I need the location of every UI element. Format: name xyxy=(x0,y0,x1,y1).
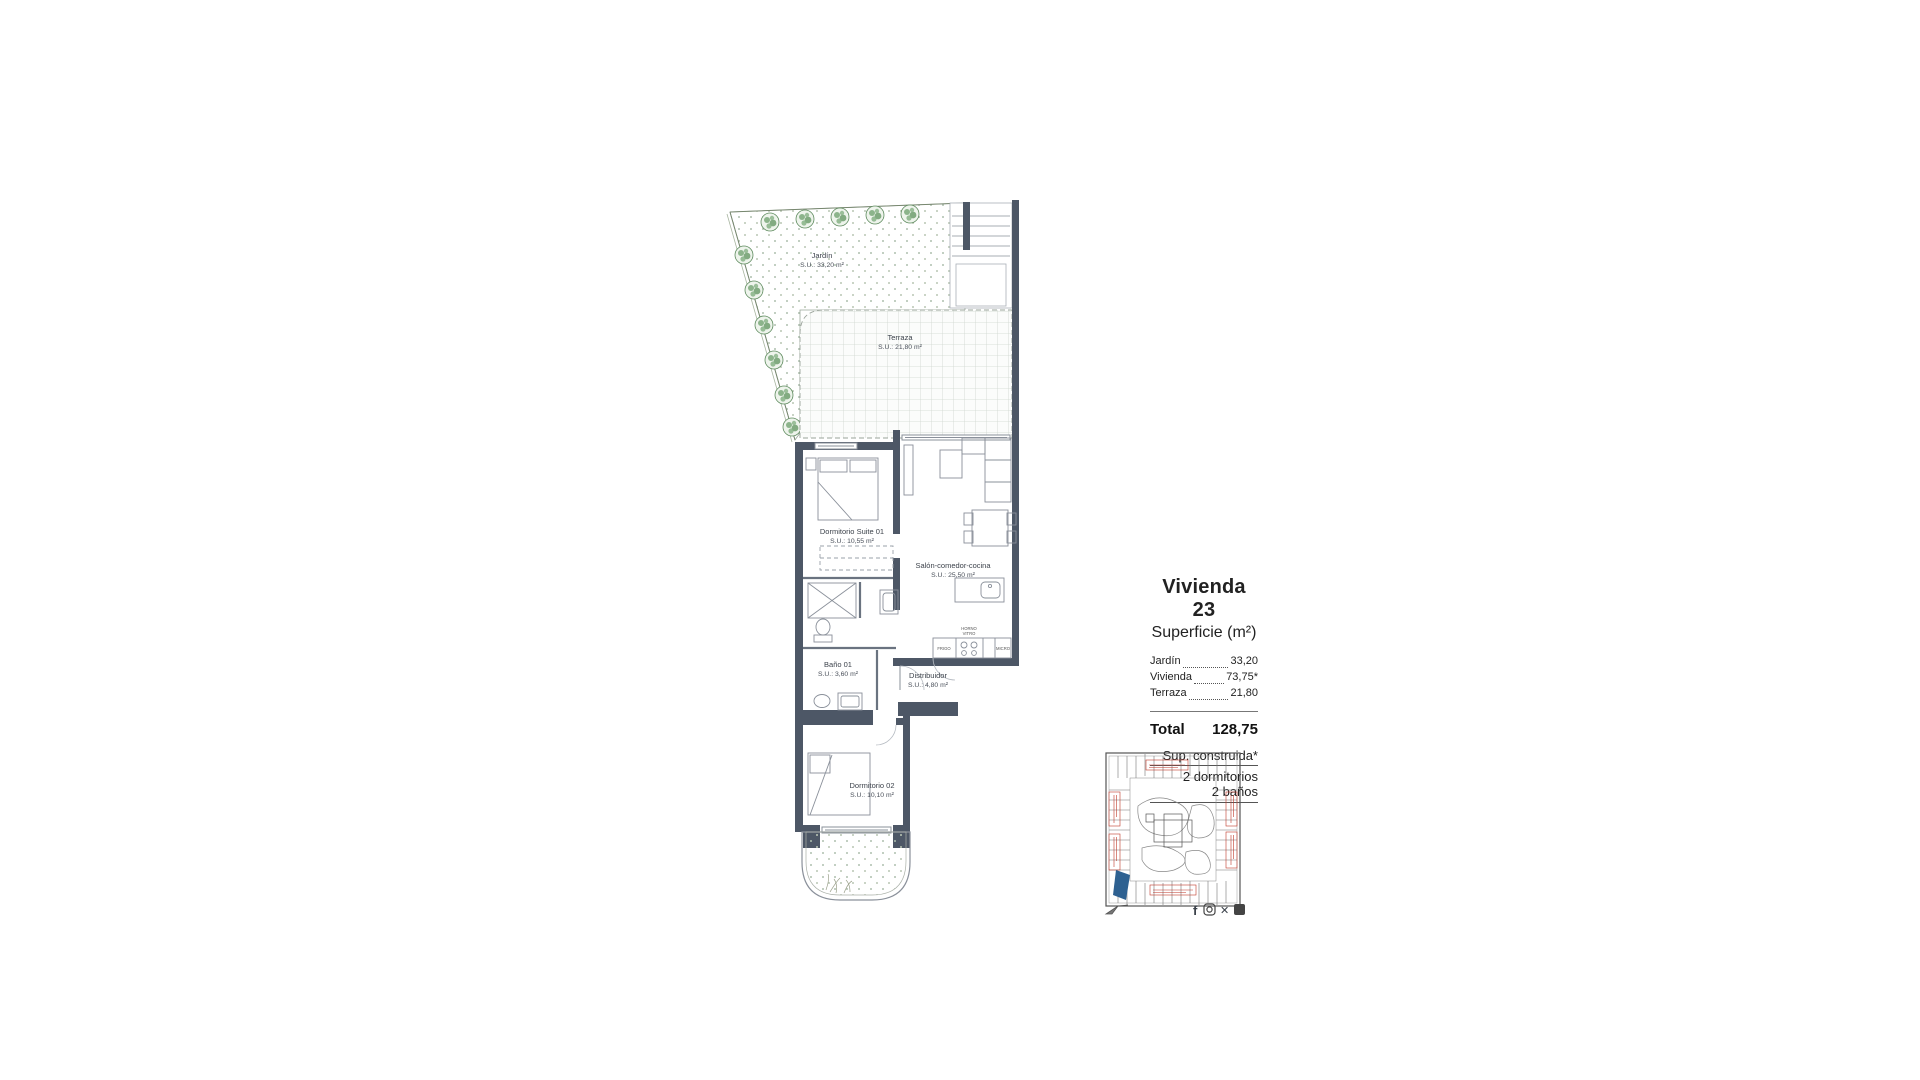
total-value: 128,75 xyxy=(1212,721,1258,738)
terrace-area-label: S.U.: 21,80 m² xyxy=(878,344,923,351)
unit-title: Vivienda 23 xyxy=(1150,576,1258,622)
surface-list: Jardín 33,20 Vivienda 73,75* Terraza 21,… xyxy=(1150,654,1258,702)
app-icon[interactable] xyxy=(1234,904,1245,915)
room-salon: FRIGO HORNO VITRO MICRO Salón-comedor-co… xyxy=(904,438,1016,658)
garden-label: Jardín xyxy=(812,251,833,260)
surface-row-vivienda: Vivienda 73,75* xyxy=(1150,670,1258,686)
entry-walkway xyxy=(950,203,1012,308)
room-suite: Dormitorio Suite 01 S.U.: 10,55 m² xyxy=(806,458,893,570)
tree-icon xyxy=(775,386,793,404)
surface-label: Jardín xyxy=(1150,654,1181,670)
surface-value: 33,20 xyxy=(1230,654,1258,670)
tree-icon xyxy=(831,208,849,226)
fridge-label: FRIGO xyxy=(937,646,951,651)
salon-area-label: S.U.: 25,50 m² xyxy=(931,572,976,579)
tree-icon xyxy=(866,206,884,224)
bano1-area-label: S.U.: 3,60 m² xyxy=(818,671,859,678)
floor-plan: Jardín S.U.: 33,20 m² Terraza S.U.: 21,8… xyxy=(700,190,1040,930)
dorm2-label: Dormitorio 02 xyxy=(849,781,894,790)
social-icons: f ✕ xyxy=(1193,903,1245,918)
x-icon[interactable]: ✕ xyxy=(1220,905,1229,917)
total-row: Total 128,75 xyxy=(1150,711,1258,738)
terrace-area: Terraza S.U.: 21,80 m² xyxy=(800,310,1012,438)
keyplan-courtyard xyxy=(1138,798,1214,874)
interior-walls xyxy=(803,578,896,710)
distribuidor-label: Distribuidor xyxy=(909,671,947,680)
tree-icon xyxy=(745,281,763,299)
surface-label: Terraza xyxy=(1150,686,1187,702)
room-dorm2: Dormitorio 02 S.U.: 10,10 m² xyxy=(808,725,896,815)
tree-icon xyxy=(796,210,814,228)
patio xyxy=(802,832,910,900)
room-ensuite xyxy=(808,583,898,642)
distribuidor-area-label: S.U.: 4,80 m² xyxy=(908,682,949,689)
facebook-icon[interactable]: f xyxy=(1193,903,1198,918)
keyplan-highlighted-unit xyxy=(1113,870,1130,900)
room-bano1: Baño 01 S.U.: 3,60 m² xyxy=(814,660,862,710)
tree-icon xyxy=(761,213,779,231)
tree-icon xyxy=(765,351,783,369)
bano1-label: Baño 01 xyxy=(824,660,852,669)
dorm2-area-label: S.U.: 10,10 m² xyxy=(850,792,895,799)
surface-value: 21,80 xyxy=(1230,686,1258,702)
tree-icon xyxy=(735,246,753,264)
site-key-plan: f ✕ xyxy=(1098,748,1248,918)
tree-icon xyxy=(783,418,801,436)
terrace-label: Terraza xyxy=(887,333,913,342)
dotted-leader xyxy=(1183,667,1229,668)
garden-area-label: S.U.: 33,20 m² xyxy=(800,262,845,269)
surface-label: Vivienda xyxy=(1150,670,1192,686)
surface-row-terraza: Terraza 21,80 xyxy=(1150,686,1258,702)
salon-label: Salón-comedor-cocina xyxy=(915,561,991,570)
oven-label-2: VITRO xyxy=(963,631,977,636)
surface-value: 73,75* xyxy=(1226,670,1258,686)
dotted-leader xyxy=(1194,683,1224,684)
dotted-leader xyxy=(1189,699,1229,700)
unit-subtitle: Superficie (m²) xyxy=(1150,624,1258,642)
tree-icon xyxy=(755,316,773,334)
total-label: Total xyxy=(1150,721,1185,738)
suite-area-label: S.U.: 10,55 m² xyxy=(830,538,875,545)
micro-label: MICRO xyxy=(996,646,1011,651)
suite-label: Dormitorio Suite 01 xyxy=(820,527,884,536)
tree-icon xyxy=(901,205,919,223)
surface-row-jardin: Jardín 33,20 xyxy=(1150,654,1258,670)
